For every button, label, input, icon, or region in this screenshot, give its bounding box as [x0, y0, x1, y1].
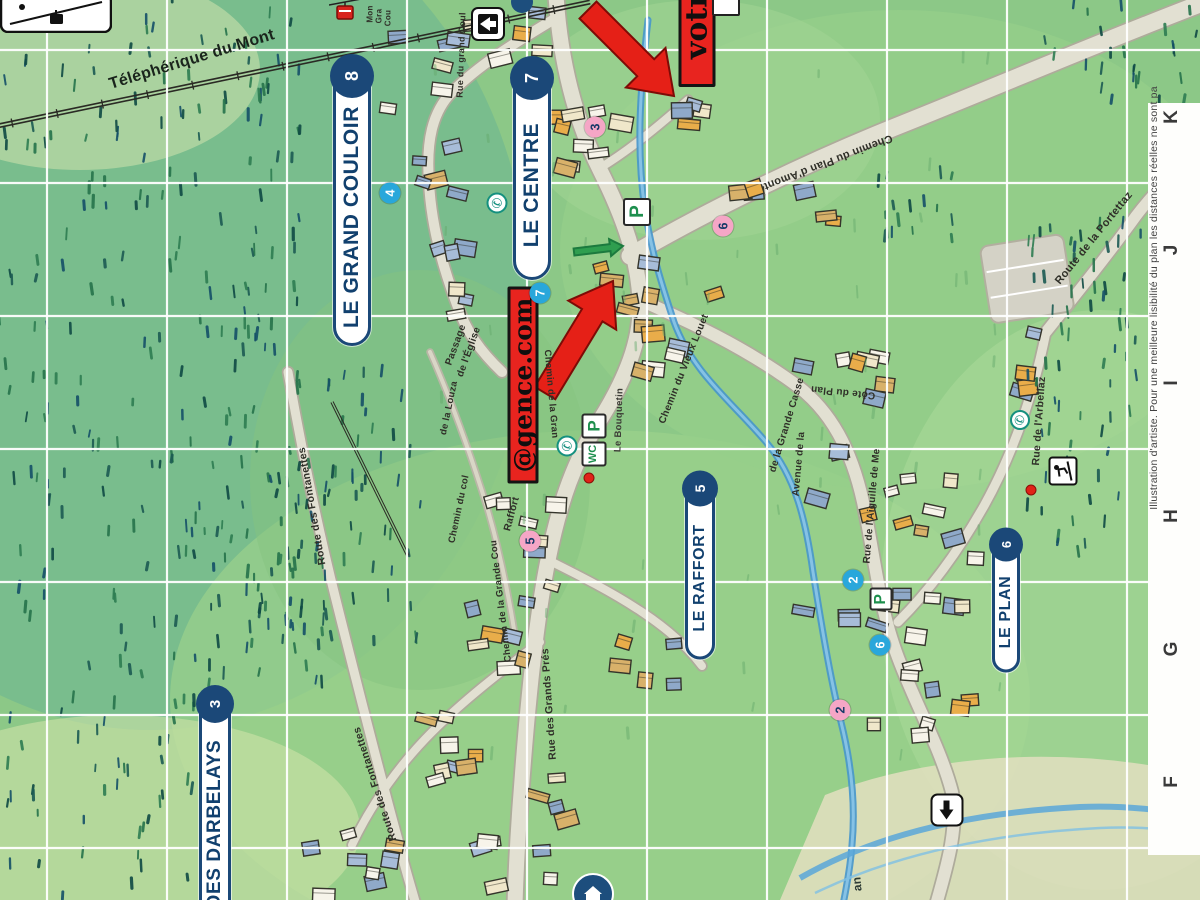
grid-letter-j: J	[1161, 245, 1183, 256]
phone-glyph: ✆	[490, 198, 503, 209]
area-label-le-grand-couloir: LE GRAND COULOIR8	[333, 56, 371, 346]
area-number-badge: 5	[682, 471, 718, 507]
poi-badge-2: 2	[843, 570, 864, 591]
red-dot-icon	[584, 473, 595, 484]
red-dot-icon	[1026, 485, 1037, 496]
area-label-le-raffort: LE RAFFORT5	[685, 473, 715, 660]
watermark-label: votre	[679, 0, 716, 87]
poi-badge-7: 7	[530, 283, 551, 304]
area-label-le-plan: LE PLAN6	[992, 530, 1020, 673]
parking-letter: P	[873, 594, 889, 604]
street-label: Cou	[384, 10, 393, 26]
phone-icon: ✆	[557, 436, 578, 457]
poi-badge-6: 6	[870, 635, 891, 656]
phone-icon: ✆	[1010, 410, 1030, 430]
street-label: Gra	[375, 9, 384, 24]
street-label: an	[849, 876, 864, 892]
grid-letter-i: I	[1161, 380, 1183, 385]
parking-letter: P	[627, 206, 646, 219]
area-label-text: LE PLAN	[997, 567, 1015, 658]
area-number-badge: 6	[989, 528, 1023, 562]
grid-letter-k: K	[1161, 110, 1183, 124]
poi-badge-6: 6	[713, 216, 734, 237]
area-label-des-darbelays: DES DARBELAYS3	[199, 687, 231, 900]
parking-icon: P	[582, 414, 607, 439]
poi-badge-4: 4	[380, 183, 401, 204]
ski-crossing-icon	[1049, 457, 1078, 486]
grid-letter-g: G	[1161, 642, 1183, 657]
area-number-badge: 3	[196, 685, 234, 723]
poi-badge-5: 5	[520, 531, 541, 552]
area-label-le-centre: LE CENTRE7	[513, 58, 551, 280]
street-label: Mon	[366, 5, 375, 22]
area-number-badge: 8	[330, 54, 374, 98]
phone-glyph: ✆	[560, 441, 573, 452]
clipped-badge-icon	[510, 0, 534, 14]
label-fragment	[712, 0, 740, 16]
wc-icon: WC	[582, 442, 607, 467]
arrow-sign-icon	[471, 7, 505, 41]
poi-badge-2: 2	[830, 700, 851, 721]
grid-letter-f: F	[1161, 776, 1183, 788]
parking-letter: P	[586, 420, 603, 431]
wc-letter: WC	[588, 445, 599, 463]
area-label-text: LE RAFFORT	[691, 512, 709, 645]
poi-circle-icon	[572, 873, 614, 900]
area-label-text: DES DARBELAYS	[204, 728, 226, 900]
street-label: Le Bouquetin	[612, 388, 625, 453]
parking-icon: P	[870, 588, 893, 611]
phone-glyph: ✆	[1014, 415, 1026, 425]
direction-sign-icon	[931, 794, 964, 827]
area-label-text: LE CENTRE	[520, 105, 544, 265]
fine-print: Illustration d'artiste. Pour une meilleu…	[1148, 86, 1160, 510]
grid-letter-h: H	[1161, 509, 1183, 523]
watermark-label: @gence.com	[508, 287, 539, 484]
area-label-text: LE GRAND COULOIR	[340, 103, 364, 331]
village-map: Illustration d'artiste. Pour une meilleu…	[0, 0, 1200, 900]
area-number-badge: 7	[510, 56, 554, 100]
cable-car-sign-icon	[0, 0, 112, 33]
phone-icon: ✆	[487, 193, 508, 214]
poi-badge-3: 3	[585, 117, 606, 138]
gondola-icon	[329, 0, 361, 23]
parking-icon: P	[623, 198, 651, 226]
